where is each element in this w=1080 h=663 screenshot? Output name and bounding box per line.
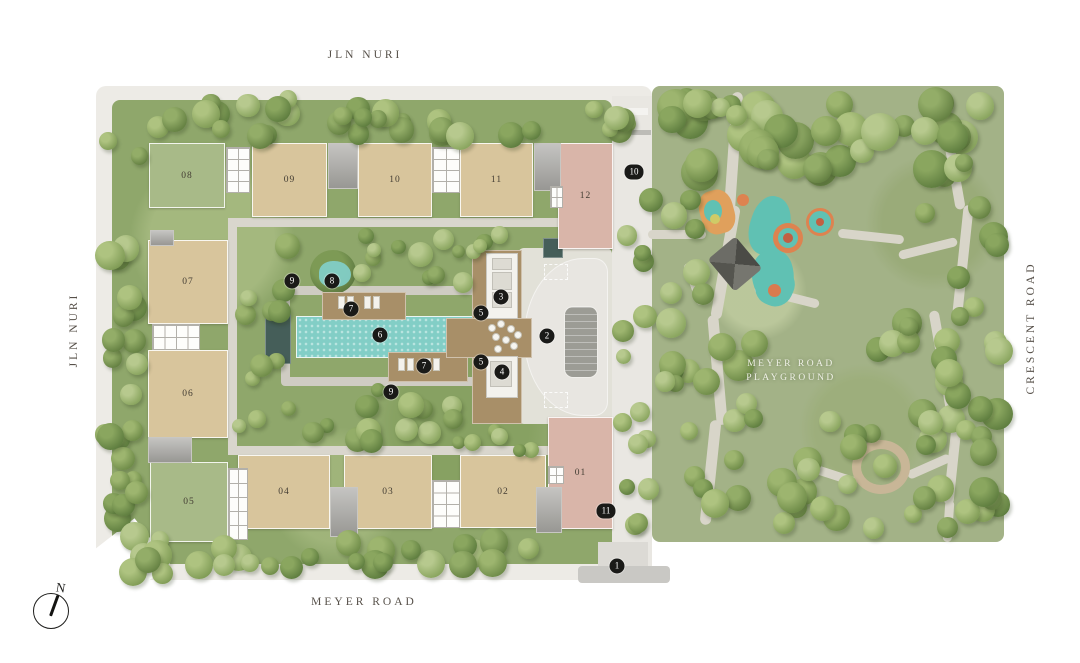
unit-marker: 9 [285, 274, 300, 289]
tree [248, 410, 266, 428]
tree [302, 422, 323, 443]
tree [661, 202, 687, 228]
block-number: 01 [575, 468, 587, 478]
tree [811, 116, 841, 146]
unit-marker: 3 [494, 290, 509, 305]
unit-marker: 9 [384, 385, 399, 400]
balcony-grid [432, 147, 460, 193]
tree [918, 410, 943, 435]
tree [162, 107, 187, 132]
unit-marker: 11 [597, 504, 616, 519]
building-block-12: 12 [558, 143, 613, 249]
playground-dot [710, 214, 720, 224]
park-name-label: MEYER ROAD PLAYGROUND [746, 357, 836, 386]
tree [613, 413, 632, 432]
marker-number: 3 [499, 293, 504, 302]
tree [367, 243, 381, 257]
tree [212, 120, 230, 138]
tree [604, 106, 629, 131]
tree [656, 308, 686, 338]
tree [634, 245, 651, 262]
tree [685, 219, 705, 239]
balcony-grid [550, 186, 563, 208]
road-label-meyer-road: MEYER ROAD [311, 596, 417, 608]
tree [433, 229, 454, 250]
furniture [492, 258, 512, 270]
tree [280, 556, 303, 579]
parking-stall [544, 392, 568, 408]
tree [873, 454, 897, 478]
unit-marker: 1 [610, 559, 625, 574]
tree [968, 396, 994, 422]
tree [398, 392, 424, 418]
building-block-09: 09 [252, 143, 327, 217]
table [510, 342, 518, 350]
tree [913, 486, 936, 509]
unit-marker: 7 [344, 302, 359, 317]
walkway [228, 446, 558, 455]
tree [408, 242, 433, 267]
stair-core [148, 437, 192, 463]
table [494, 345, 502, 353]
tree [333, 107, 352, 126]
tree [131, 147, 149, 165]
unit-marker: 5 [474, 355, 489, 370]
tree [464, 434, 481, 451]
lounger [398, 358, 405, 371]
park-name-line1: MEYER ROAD [746, 357, 836, 371]
tree [619, 479, 635, 495]
tree [213, 554, 235, 576]
tree [518, 538, 539, 559]
site-plan: 01 02 03 04 05 06 07 08 09 10 11 12 [0, 0, 1080, 663]
road-label-jln-nuri-left: JLN NURI [68, 293, 80, 368]
building-block-08: 08 [149, 143, 225, 208]
block-number: 02 [497, 487, 509, 497]
marker-number: 8 [330, 277, 335, 286]
unit-marker: 4 [495, 365, 510, 380]
north-compass: N [30, 582, 80, 642]
tree [449, 551, 477, 579]
tree [102, 328, 125, 351]
table [492, 333, 500, 341]
marker-number: 1 [615, 562, 620, 571]
tree [692, 283, 714, 305]
block-number: 10 [389, 175, 401, 185]
block-number: 12 [580, 191, 592, 201]
block-number: 06 [182, 389, 194, 399]
tree [250, 354, 273, 377]
tree [655, 371, 676, 392]
tree [680, 422, 698, 440]
tree [935, 359, 963, 387]
entrance-canopy [564, 306, 598, 378]
tree [446, 122, 474, 150]
tree [840, 434, 866, 460]
lounger [364, 296, 371, 309]
tree [473, 239, 487, 253]
lounger [407, 358, 414, 371]
tree [391, 240, 406, 255]
block-number: 03 [382, 487, 394, 497]
block-number: 09 [284, 175, 296, 185]
stair-core [536, 487, 562, 533]
compass-north-label: N [55, 579, 67, 596]
tree [491, 226, 508, 243]
balcony-grid [432, 480, 460, 528]
building-block-07: 07 [148, 240, 228, 324]
tree [585, 101, 603, 119]
tree [401, 540, 421, 560]
tree [612, 320, 634, 342]
tree [639, 188, 663, 212]
tree [241, 554, 259, 572]
unit-marker: 2 [540, 329, 555, 344]
table [497, 320, 505, 328]
tree [117, 285, 142, 310]
tree [638, 478, 660, 500]
table [502, 336, 510, 344]
building-block-11: 11 [460, 143, 533, 217]
tree [985, 337, 1013, 365]
balcony-grid [152, 324, 200, 350]
tree [247, 123, 273, 149]
lounger [433, 358, 440, 371]
marker-number: 5 [479, 358, 484, 367]
tree [741, 330, 768, 357]
marker-number: 10 [630, 168, 639, 177]
tree [443, 409, 463, 429]
tree [236, 94, 260, 118]
tree [111, 447, 135, 471]
playground-dot [768, 284, 781, 297]
road-label-crescent-road: CRESCENT ROAD [1025, 261, 1037, 394]
tree [268, 300, 291, 323]
marker-number: 5 [479, 309, 484, 318]
balcony-grid [228, 468, 248, 540]
block-number: 07 [182, 277, 194, 287]
stair-core [534, 143, 561, 191]
tree [120, 384, 142, 406]
tree [951, 307, 970, 326]
building-block-06: 06 [148, 350, 228, 438]
tree [937, 121, 969, 153]
lounger [373, 296, 380, 309]
tree [373, 553, 392, 572]
unit-marker: 7 [417, 359, 432, 374]
tree [861, 113, 899, 151]
marker-number: 7 [422, 362, 427, 371]
unit-marker: 8 [325, 274, 340, 289]
tree [185, 551, 213, 579]
tree [95, 241, 124, 270]
block-number: 11 [491, 175, 502, 185]
tree [916, 435, 937, 456]
tree [773, 512, 795, 534]
balcony-grid [226, 147, 250, 193]
tree [628, 434, 648, 454]
table [514, 331, 522, 339]
tree [301, 548, 319, 566]
tree [395, 418, 418, 441]
marker-number: 6 [378, 331, 383, 340]
tree [522, 121, 541, 140]
tree [478, 549, 507, 578]
tree [453, 272, 474, 293]
tree [360, 429, 383, 452]
tree [617, 225, 638, 246]
stair-core [150, 230, 174, 246]
playground-dot [816, 218, 824, 226]
tree [418, 421, 441, 444]
building-block-04: 04 [238, 455, 330, 529]
tree [135, 547, 161, 573]
tree [348, 123, 369, 144]
unit-marker: 5 [474, 306, 489, 321]
tree [911, 117, 939, 145]
park-name-line2: PLAYGROUND [746, 371, 836, 385]
tree [513, 444, 526, 457]
walkway [228, 218, 558, 227]
marker-number: 7 [349, 305, 354, 314]
tree [358, 228, 374, 244]
building-block-05: 05 [150, 462, 228, 542]
balcony-grid [548, 466, 564, 484]
tree [757, 149, 779, 171]
stair-core [328, 143, 358, 189]
block-number: 04 [278, 487, 290, 497]
tree [354, 108, 373, 127]
marker-number: 2 [545, 332, 550, 341]
tree [797, 458, 819, 480]
tree [966, 92, 994, 120]
tree [355, 395, 379, 419]
tree [685, 148, 718, 181]
tree [658, 106, 686, 134]
tree [693, 368, 720, 395]
tree [985, 233, 1009, 257]
marker-number: 4 [500, 368, 505, 377]
parking-stall [544, 264, 568, 280]
tree [955, 154, 973, 172]
tree [122, 420, 143, 441]
tree [353, 264, 371, 282]
block-number: 08 [181, 171, 193, 181]
road-label-jln-nuri-top: JLN NURI [328, 49, 403, 61]
marker-number: 9 [290, 277, 295, 286]
tree [863, 517, 884, 538]
tree [777, 482, 808, 513]
tree [838, 475, 857, 494]
marker-number: 9 [389, 388, 394, 397]
furniture [492, 272, 512, 290]
table [488, 324, 496, 332]
marker-number: 11 [602, 507, 611, 516]
tree [616, 349, 631, 364]
block-number: 05 [183, 497, 195, 507]
tree [427, 266, 445, 284]
playground-dot [737, 194, 749, 206]
unit-marker: 6 [373, 328, 388, 343]
playground-ring-center [783, 233, 793, 243]
unit-marker: 10 [625, 165, 644, 180]
building-block-10: 10 [358, 143, 432, 217]
tree [630, 402, 650, 422]
building-block-02: 02 [460, 455, 546, 528]
tree [970, 438, 998, 466]
